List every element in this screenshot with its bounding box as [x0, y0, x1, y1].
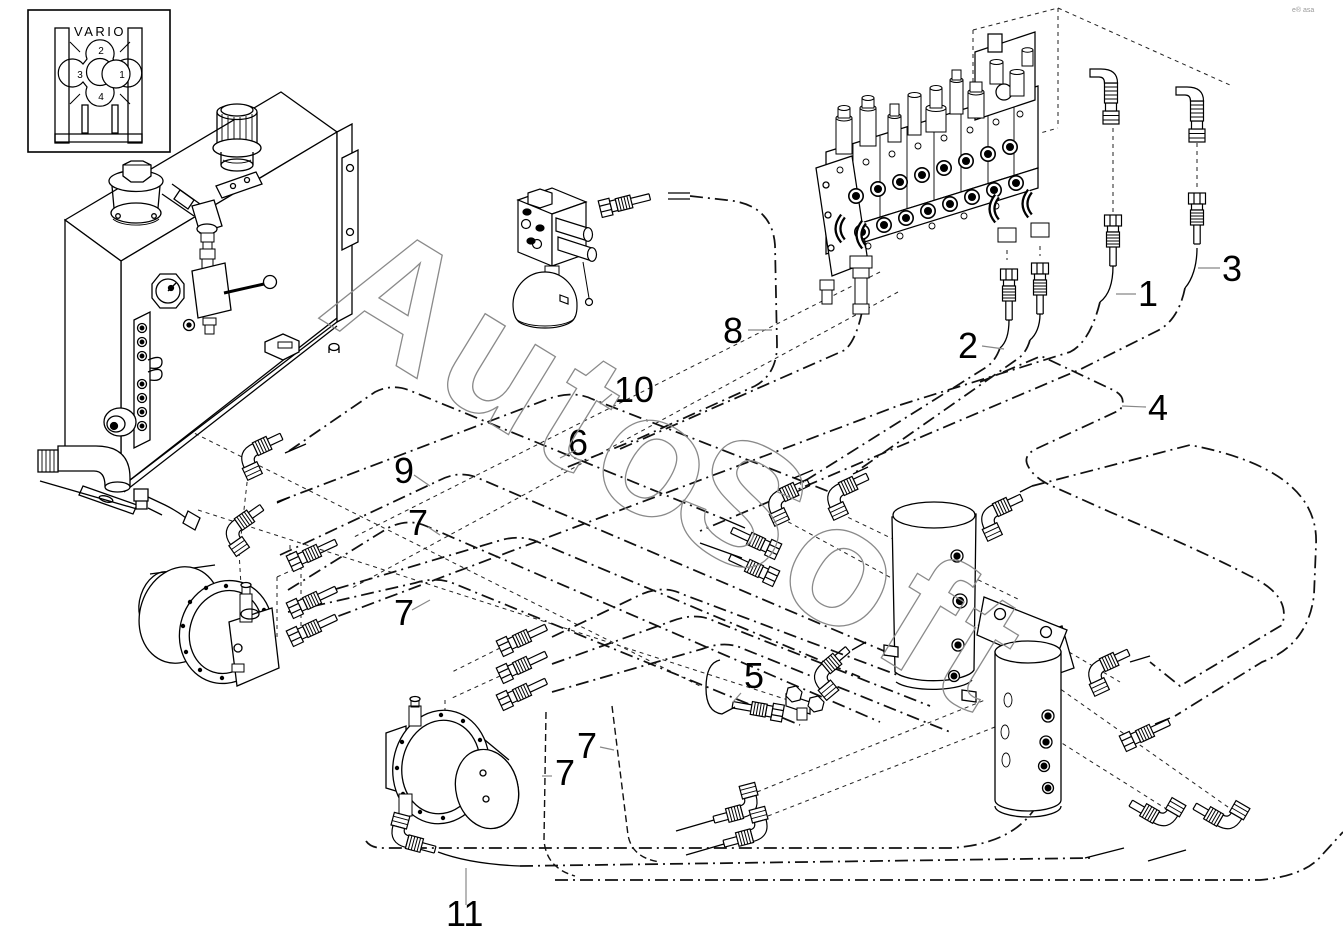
svg-text:2: 2 — [98, 46, 104, 57]
svg-text:7: 7 — [408, 502, 428, 543]
svg-text:7: 7 — [394, 592, 414, 633]
svg-text:5: 5 — [744, 655, 764, 696]
svg-text:7: 7 — [555, 752, 575, 793]
svg-text:4: 4 — [98, 92, 104, 103]
svg-text:3: 3 — [1222, 248, 1242, 289]
svg-text:VARIO: VARIO — [74, 24, 126, 39]
svg-text:2: 2 — [958, 325, 978, 366]
svg-text:3: 3 — [77, 70, 83, 81]
svg-text:8: 8 — [723, 310, 743, 351]
svg-text:e® asa: e® asa — [1292, 6, 1314, 14]
svg-text:11: 11 — [446, 893, 483, 934]
svg-text:9: 9 — [394, 450, 414, 491]
svg-text:7: 7 — [577, 725, 597, 766]
svg-text:4: 4 — [1148, 387, 1168, 428]
svg-text:1: 1 — [119, 70, 125, 81]
svg-text:1: 1 — [1138, 273, 1158, 314]
